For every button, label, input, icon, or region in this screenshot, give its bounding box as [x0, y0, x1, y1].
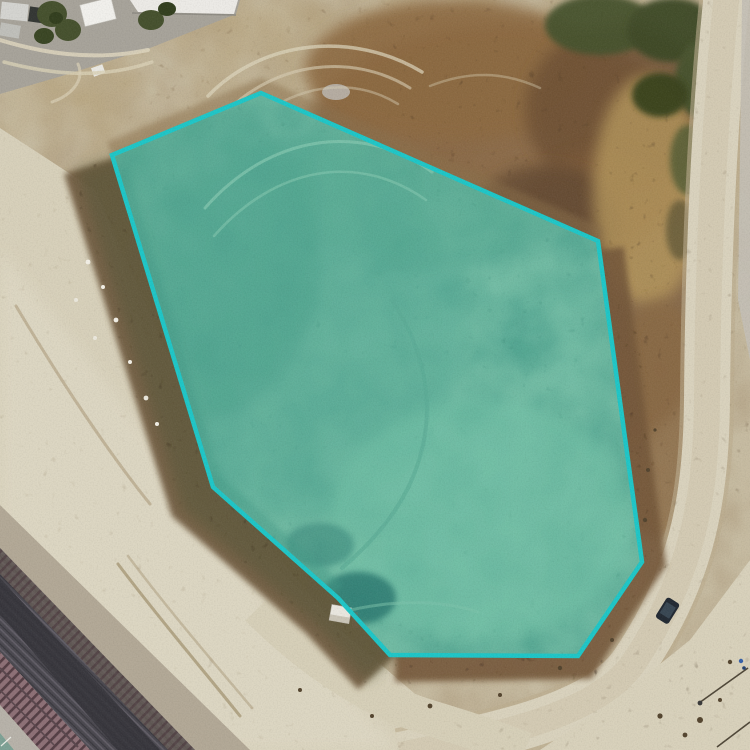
map-view: [0, 0, 750, 750]
aerial-imagery: [0, 0, 750, 750]
photo-grain: [0, 0, 750, 750]
